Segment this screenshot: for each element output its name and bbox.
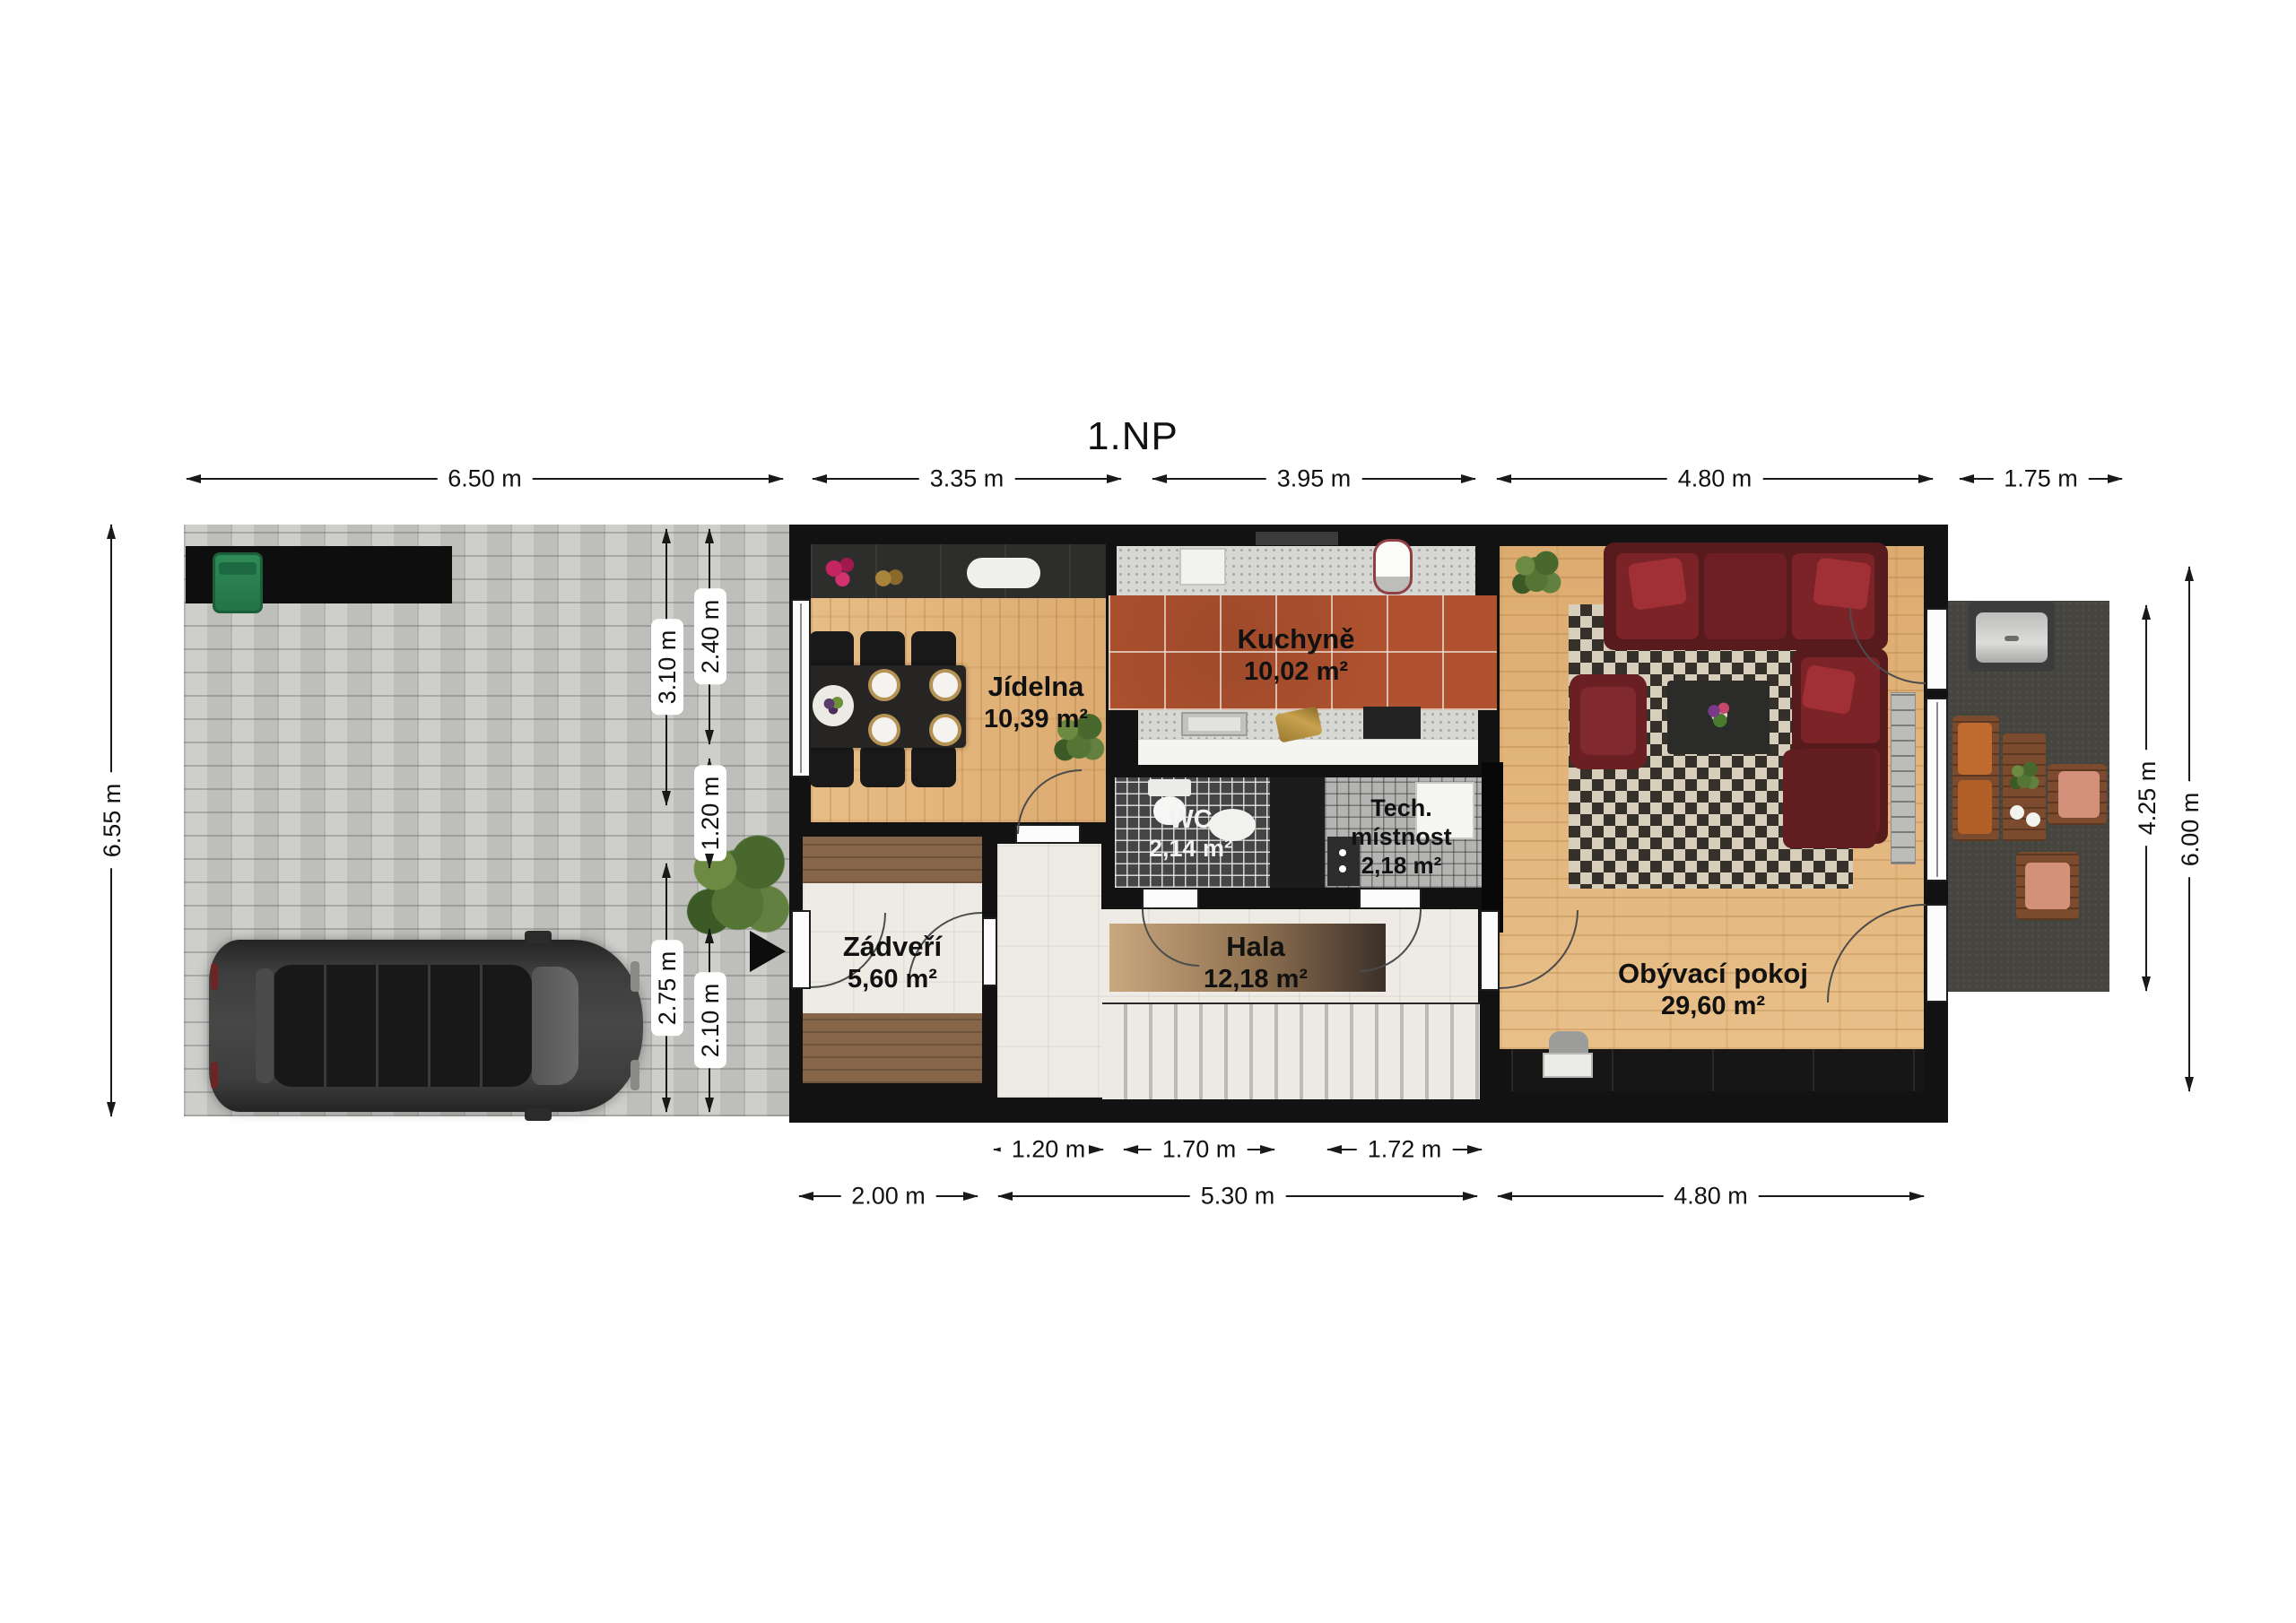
grapes-icon [820, 694, 847, 716]
terrace-bench [1952, 716, 1999, 841]
car-windshield [532, 967, 578, 1085]
dim-top-3: 3.95 m [1152, 478, 1475, 480]
car-roof [272, 965, 532, 1087]
tv-panel [1482, 762, 1503, 933]
car-headlight-top [631, 961, 639, 992]
armchair [1570, 674, 1647, 769]
kitchen-counter-front [1138, 739, 1478, 765]
dim-bottom-u2: 1.70 m [1124, 1149, 1274, 1150]
dim-inner-2: 2.75 m [665, 864, 667, 1112]
car-mirror-bottom [525, 1108, 552, 1121]
dining-chair [809, 744, 854, 787]
sofa-pillow [1628, 557, 1688, 611]
kitchen-hood [1256, 532, 1338, 545]
doormat-bottom [803, 1013, 982, 1083]
terrace-table [2003, 733, 2046, 841]
boiler-icon [1373, 539, 1413, 595]
grill-handle [2005, 636, 2019, 641]
wc-door [1142, 888, 1199, 909]
dim-inner-4: 1.20 m [709, 759, 710, 868]
living-door [1480, 910, 1500, 991]
sink-basin [1188, 717, 1240, 731]
bench-cushion [1958, 723, 1992, 775]
sofa-top [1604, 542, 1888, 650]
terrace-door-top [1926, 608, 1948, 690]
car-taillight-bottom [211, 1062, 218, 1089]
computer-monitor [1543, 1053, 1593, 1078]
living-window [1926, 698, 1948, 881]
gold-decor-icon [868, 567, 906, 590]
dim-bottom-u3: 1.72 m [1327, 1149, 1482, 1150]
radiator [1891, 692, 1916, 864]
sofa-pillow [1813, 558, 1872, 611]
trash-bin-lid [219, 562, 257, 575]
terrace-door-bottom [1926, 904, 1948, 1002]
dining-window [791, 599, 811, 777]
dim-inner-1: 3.10 m [665, 529, 667, 805]
car-mirror-top [525, 931, 552, 943]
label-zadveri: Zádveří 5,60 m² [789, 931, 996, 994]
stove-hob [1363, 707, 1421, 739]
toilet-tank [1148, 779, 1191, 796]
chair-cushion [2058, 771, 2100, 818]
dim-bottom-l1: 2.00 m [799, 1195, 978, 1197]
terrace-chair-right [2048, 764, 2107, 825]
chair-cushion [2025, 863, 2070, 909]
car-rear-window [256, 968, 274, 1083]
car-taillight-top [211, 963, 218, 990]
cup-icon [2010, 805, 2024, 820]
label-obyvaci: Obývací pokoj 29,60 m² [1565, 958, 1861, 1021]
kitchen-top-counter [1117, 546, 1475, 595]
armchair-seat [1580, 687, 1636, 755]
bench-cushion [1958, 780, 1992, 834]
doormat-top [803, 837, 982, 883]
sideboard-bowl [967, 558, 1040, 588]
table-plant-icon [2008, 759, 2040, 794]
label-wc: WC 2,14 m² [1112, 804, 1269, 864]
dim-left: 6.55 m [110, 525, 112, 1116]
serving-platter-icon [813, 685, 854, 726]
dim-top-1: 6.50 m [187, 478, 783, 480]
dim-bottom-u1: 1.20 m [994, 1149, 1103, 1150]
terrace-chair-bottom [2016, 852, 2079, 920]
tech-door [1359, 888, 1422, 909]
dim-top-4: 4.80 m [1497, 478, 1933, 480]
flower-vase-icon [1701, 697, 1737, 733]
page-title: 1.NP [1087, 414, 1178, 459]
dim-bottom-l3: 4.80 m [1498, 1195, 1924, 1197]
plate-icon [868, 669, 900, 701]
dim-top-5: 1.75 m [1960, 478, 2122, 480]
dim-bottom-l2: 5.30 m [998, 1195, 1477, 1197]
flower-decor-icon [819, 554, 862, 590]
dining-chair [911, 744, 956, 787]
label-kuchyne: Kuchyně 10,02 m² [1193, 623, 1399, 687]
dining-chair [860, 744, 905, 787]
dim-top-2: 3.35 m [813, 478, 1121, 480]
ottoman [1783, 750, 1876, 848]
sofa-pillow [1801, 664, 1857, 716]
trash-bin-icon [213, 552, 263, 613]
dim-right-1: 4.25 m [2145, 605, 2147, 991]
grill-icon [1969, 602, 2055, 672]
dim-inner-5: 2.10 m [709, 929, 710, 1112]
shaft-wall [1270, 777, 1325, 888]
kitchen-appliance [1179, 548, 1226, 586]
sofa-cushion [1704, 553, 1787, 639]
car [209, 940, 643, 1112]
living-plant-icon [1509, 547, 1564, 601]
coffee-table [1667, 681, 1770, 754]
label-hala: Hala 12,18 m² [1157, 931, 1354, 994]
label-jidelna: Jídelna 10,39 m² [933, 671, 1139, 734]
dim-inner-3: 2.40 m [709, 529, 710, 744]
cup-icon [2026, 812, 2040, 827]
staircase [1102, 1002, 1480, 1099]
kitchen-sink [1181, 712, 1248, 736]
plate-icon [868, 714, 900, 746]
dim-right-2: 6.00 m [2188, 567, 2190, 1091]
entrance-arrow-icon [750, 931, 786, 972]
car-headlight-bottom [631, 1060, 639, 1090]
label-tech: Tech. místnost 2,18 m² [1318, 794, 1484, 879]
